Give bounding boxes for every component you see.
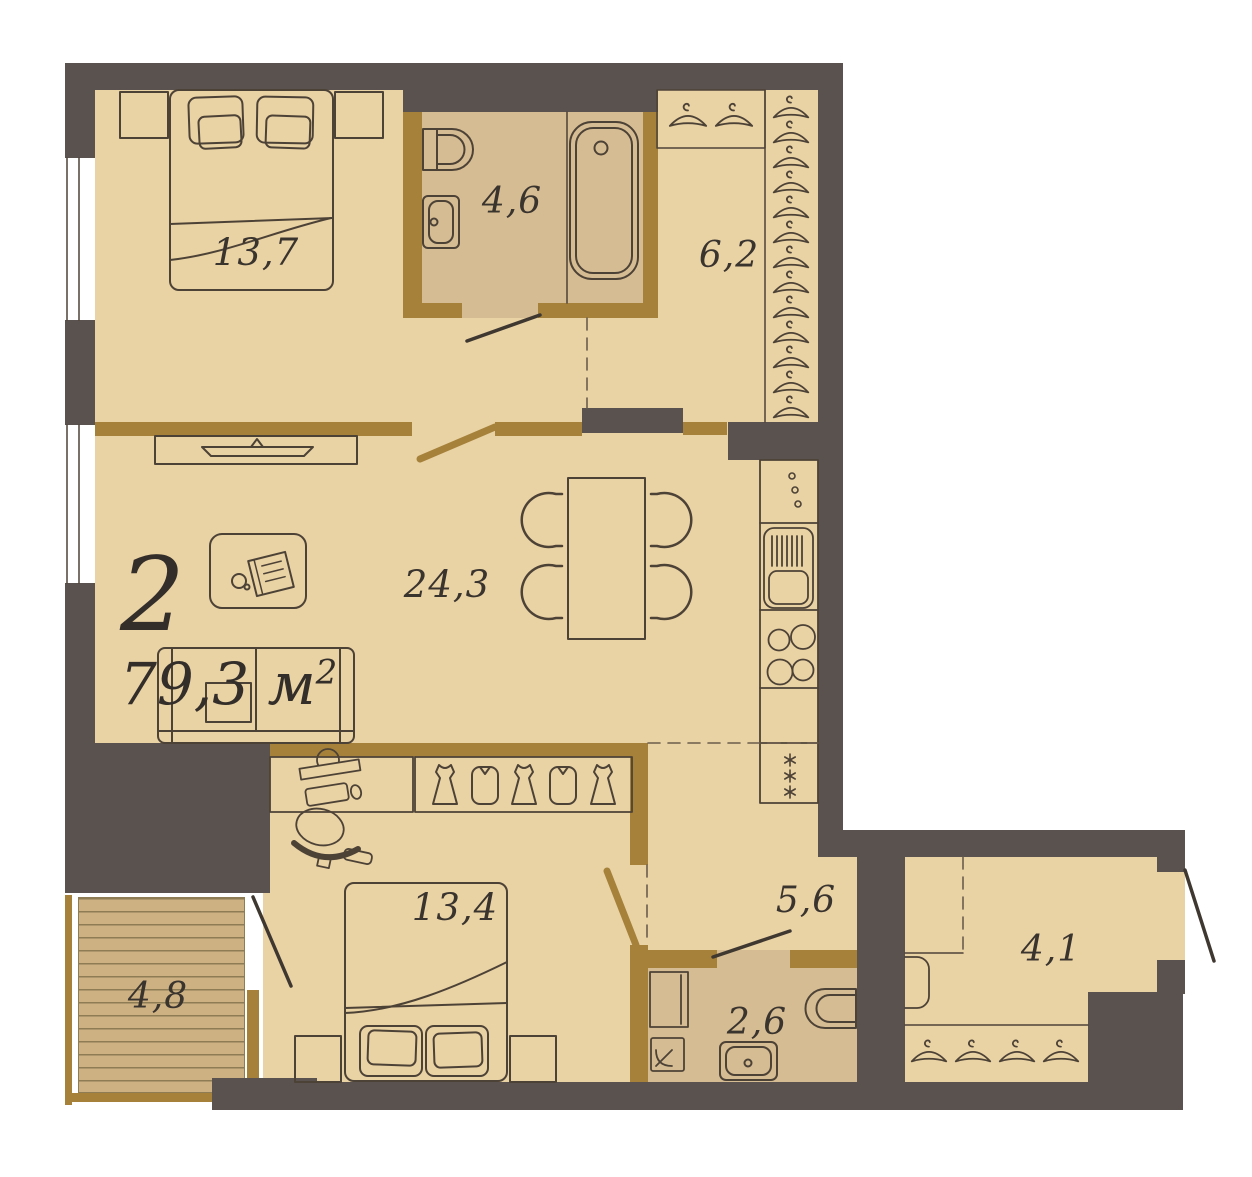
hanger-icon: [1000, 1040, 1035, 1061]
apartment-area: 79,3 м2: [120, 655, 337, 713]
cup-icon: [232, 574, 250, 590]
hanger-icon: [956, 1040, 991, 1061]
hanger-icon: [774, 371, 809, 392]
apartment-area-value: 79,3: [120, 650, 249, 718]
office-chair-icon: [292, 804, 372, 868]
hanger-icon: [774, 321, 809, 342]
pillow-icon: [188, 96, 313, 149]
wardrobe-icon: [415, 757, 632, 812]
hanger-icon: [774, 196, 809, 217]
dress-icon: [433, 765, 457, 804]
room-label-hallway: 5,6: [736, 883, 876, 919]
room-label-wardrobe-hall: 6,2: [659, 238, 799, 274]
room-label-bedroom-top: 13,7: [186, 234, 326, 271]
hanger-icon: [670, 104, 706, 126]
apartment-area-unit: м: [249, 650, 316, 718]
coffee-table-icon: [210, 534, 306, 608]
room-label-balcony: 4,8: [88, 979, 228, 1015]
room-label-living-kitchen: 24,3: [377, 566, 517, 603]
window-glazing: [67, 158, 79, 583]
fridge-snowflake-icon: [785, 754, 795, 798]
floor-plan: 13,7 4,6 6,2 24,3 13,4 5,6 2,6 4,8 4,1 2…: [0, 0, 1252, 1177]
cabinet-icon: [650, 972, 688, 1027]
cooktop-icon: [768, 625, 816, 685]
hanger-icon: [774, 346, 809, 367]
hanger-icon: [774, 96, 809, 117]
desk-icon: [270, 749, 413, 812]
kitchen-cabinet-icon: [760, 460, 818, 803]
room-label-bathroom-bottom: 2,6: [687, 1005, 827, 1041]
door-leaf-icon: [253, 315, 1214, 986]
magazine-icon: [248, 552, 294, 596]
hanger-icon: [774, 171, 809, 192]
dress-icon: [591, 765, 615, 804]
dress-icon: [512, 765, 536, 804]
chair-icon: [522, 493, 692, 619]
hanger-icon: [774, 146, 809, 167]
hanger-icon: [774, 296, 809, 317]
cabinet-icon: [905, 957, 929, 1008]
hanger-icon: [912, 1040, 947, 1061]
drawer-handles-icon: [789, 473, 801, 507]
pillow-icon: [360, 1026, 488, 1076]
washbasin-icon: [720, 1042, 777, 1080]
room-label-bedroom-bottom: 13,4: [385, 889, 525, 926]
hanger-icon: [1044, 1040, 1079, 1061]
hanger-icon: [774, 396, 809, 417]
hanger-icon: [774, 271, 809, 292]
jacket-icon: [550, 767, 576, 804]
room-label-bathroom-top: 4,6: [442, 184, 582, 220]
dining-table-icon: [568, 478, 645, 639]
tv-icon: [202, 439, 313, 456]
zone-dashed-lines: [587, 318, 963, 950]
washing-machine-icon: [651, 1038, 684, 1071]
hanger-icon: [716, 104, 752, 126]
hanger-icon: [774, 121, 809, 142]
toilet-icon: [423, 129, 473, 170]
hanger-row-shelf: [670, 104, 752, 126]
room-label-entry: 4,1: [981, 932, 1121, 968]
apartment-area-exponent: 2: [316, 653, 338, 693]
jacket-icon: [472, 767, 498, 804]
nightstand-icon: [120, 92, 383, 138]
kitchen-sink-icon: [764, 528, 813, 608]
apartment-number: 2: [120, 545, 185, 647]
